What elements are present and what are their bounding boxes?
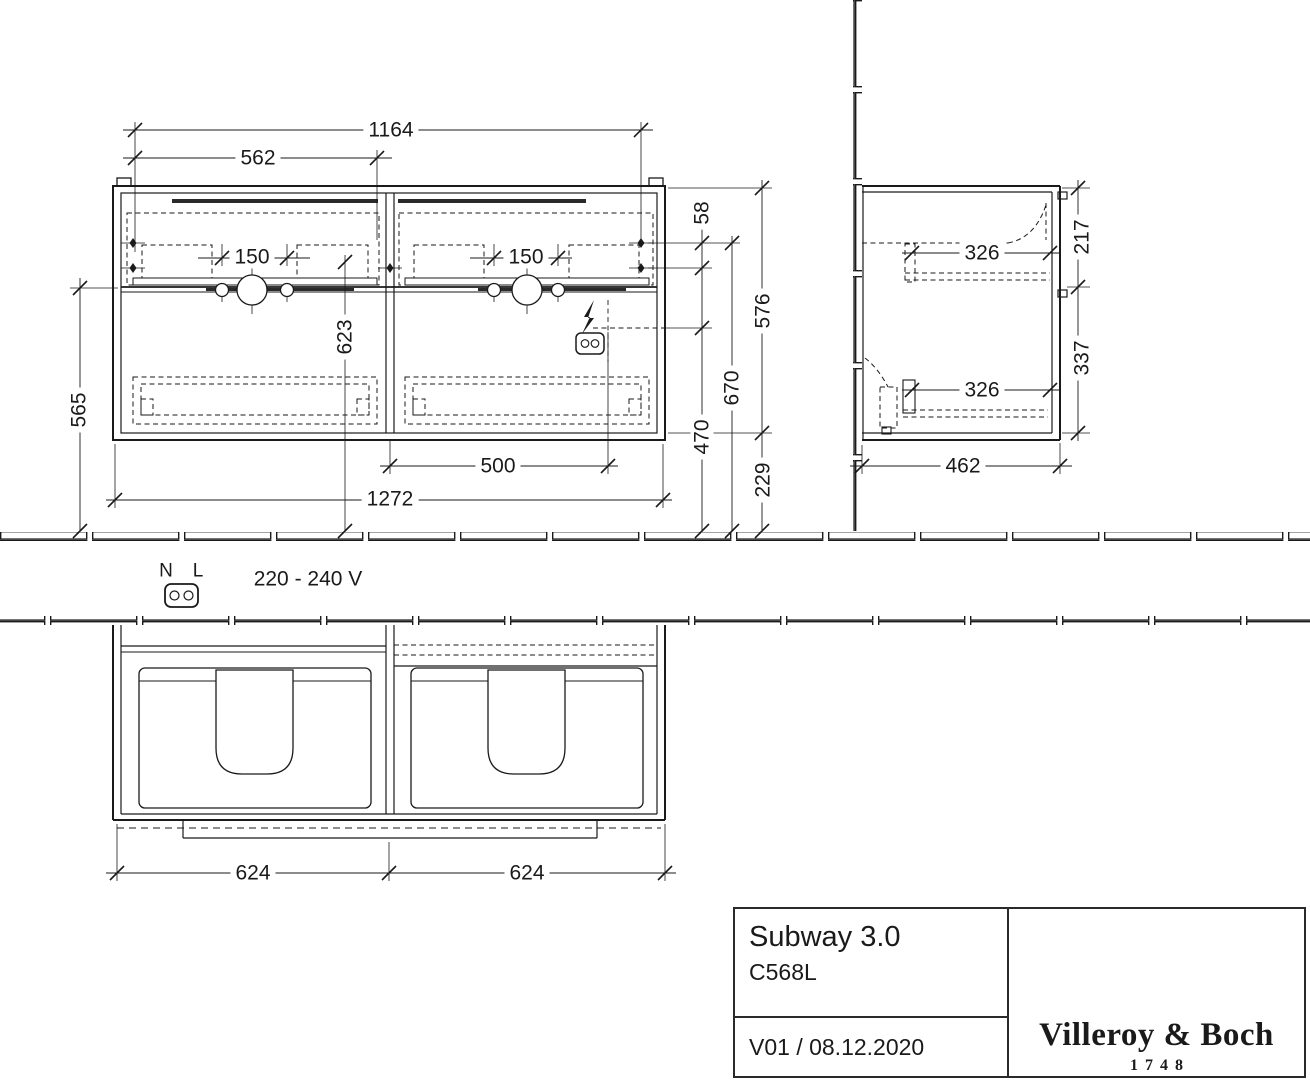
product-series: Subway 3.0 [749, 921, 901, 954]
dim-plan-left-drawer-width: 624 [230, 862, 275, 885]
front-view-socket-symbol [576, 300, 664, 362]
socket-line-label: L [191, 561, 206, 582]
title-block-version-cell: V01 / 08.12.2020 [735, 1018, 1007, 1076]
dim-front-tap-spacing-left: 150 [229, 246, 274, 269]
product-model-number: C568L [749, 959, 817, 986]
dim-side-lower-front-height: 337 [1071, 335, 1094, 380]
dim-side-upper-drawer-depth: 326 [959, 242, 1004, 265]
brand-founding-year: 1748 [1009, 1057, 1304, 1075]
side-view-cabinet [862, 186, 1067, 440]
title-block-product-cell: Subway 3.0 C568L [735, 909, 1007, 1018]
front-view-cabinet [113, 178, 665, 440]
dim-front-underside-above-floor: 229 [752, 457, 775, 502]
plan-view-dimensions [106, 824, 676, 881]
dim-plan-right-drawer-width: 624 [504, 862, 549, 885]
side-view-dimensions [850, 180, 1090, 474]
title-block: Subway 3.0 C568L V01 / 08.12.2020 Viller… [733, 907, 1306, 1078]
drawing-version-date: V01 / 08.12.2020 [749, 1034, 924, 1061]
dim-side-cabinet-depth: 462 [940, 455, 985, 478]
floor-section-line-upper [0, 532, 1310, 541]
plan-view-basins [139, 668, 643, 808]
front-view-dimensions [70, 122, 772, 538]
dim-front-socket-offset: 500 [475, 455, 520, 478]
technical-drawing-page: 1164 562 150 150 623 565 58 576 670 470 … [0, 0, 1310, 1080]
floor-section-line-lower [0, 616, 1310, 625]
lightning-bolt-icon [582, 300, 594, 334]
mains-socket-symbol [165, 584, 198, 607]
dim-front-overall-width: 1272 [362, 488, 419, 511]
dim-front-top-fixing-width: 1164 [363, 119, 418, 142]
voltage-label: 220 - 240 V [252, 568, 365, 591]
front-view-fixing-points [121, 238, 653, 273]
dim-front-left-half-width: 562 [235, 147, 280, 170]
dim-front-tap-spacing-right: 150 [503, 246, 548, 269]
title-block-brand-cell: Villeroy & Boch 1748 [1009, 909, 1304, 1076]
dim-side-upper-front-height: 217 [1071, 214, 1094, 259]
brand-wordmark: Villeroy & Boch [1009, 1017, 1304, 1054]
dim-front-cabinet-height: 576 [752, 288, 775, 333]
socket-neutral-label: N [157, 561, 175, 582]
plan-view-cabinet [113, 625, 665, 838]
dim-front-socket-above-floor: 470 [691, 414, 714, 459]
dim-front-drain-above-floor: 565 [68, 387, 91, 432]
dim-side-lower-drawer-depth: 326 [959, 379, 1004, 402]
dim-front-fixing-hole-gap: 58 [691, 196, 714, 229]
dim-front-tap-line-above-floor: 623 [334, 314, 357, 359]
title-block-left-column: Subway 3.0 C568L V01 / 08.12.2020 [735, 909, 1009, 1076]
wall-section-line [853, 0, 862, 531]
dim-front-fixing-holes-above-floor: 670 [721, 365, 744, 410]
